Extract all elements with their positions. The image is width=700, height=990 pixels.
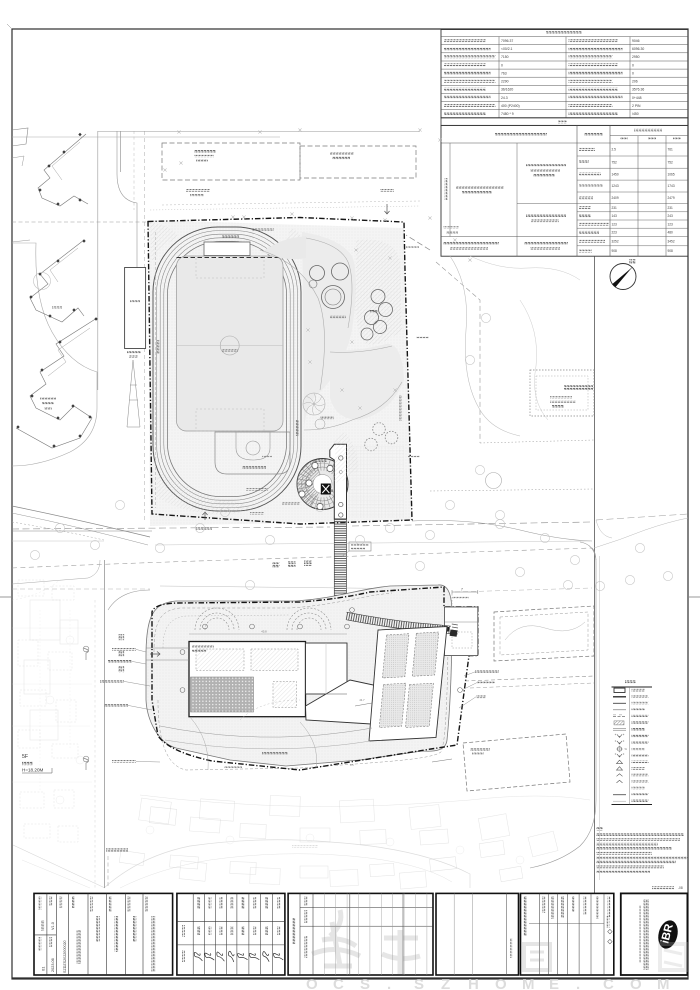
svg-text:908: 908 — [668, 249, 674, 253]
svg-text:3576.36: 3576.36 — [632, 88, 644, 92]
svg-text:9046: 9046 — [632, 39, 640, 43]
svg-text:2 PIN: 2 PIN — [632, 104, 641, 108]
svg-text:752: 752 — [612, 160, 618, 164]
svg-text:231: 231 — [612, 206, 618, 210]
svg-text:0: 0 — [501, 63, 503, 67]
svg-text:231: 231 — [668, 206, 674, 210]
svg-text:C: C — [603, 976, 614, 990]
svg-text:7: 7 — [461, 588, 463, 592]
svg-text:6096.30: 6096.30 — [632, 47, 644, 51]
svg-text:3452: 3452 — [668, 239, 675, 243]
svg-text:<00/2.1: <00/2.1 — [501, 47, 513, 51]
svg-text:7096.37: 7096.37 — [501, 39, 513, 43]
svg-text:O: O — [306, 976, 318, 990]
svg-text:2479: 2479 — [668, 196, 675, 200]
svg-text:143: 143 — [612, 214, 618, 218]
svg-text:1450: 1450 — [612, 172, 619, 176]
svg-text:908: 908 — [612, 249, 618, 253]
svg-text:24.3: 24.3 — [501, 96, 508, 100]
svg-text:223: 223 — [612, 231, 618, 235]
svg-text:SZDZS2022000020: SZDZS2022000020 — [63, 940, 67, 973]
svg-text:761: 761 — [668, 148, 674, 152]
svg-text:2.5: 2.5 — [612, 148, 617, 152]
svg-text:0: 0 — [632, 71, 634, 75]
svg-text:1743: 1743 — [668, 184, 675, 188]
svg-text:243: 243 — [668, 214, 674, 218]
svg-text:36/1620: 36/1620 — [501, 88, 513, 92]
svg-text:S: S — [414, 976, 424, 990]
svg-text:1065: 1065 — [668, 172, 675, 176]
svg-text:S: S — [360, 976, 370, 990]
svg-text:4.5: 4.5 — [350, 763, 354, 767]
svg-text:123: 123 — [668, 222, 674, 226]
svg-text:2409: 2409 — [612, 196, 619, 200]
svg-text:O: O — [495, 976, 507, 990]
svg-text:7480 * 9: 7480 * 9 — [501, 112, 514, 116]
svg-text:2023.06: 2023.06 — [51, 958, 55, 972]
svg-text:V1.0: V1.0 — [51, 922, 55, 930]
svg-text:O: O — [630, 976, 642, 990]
svg-text:2290: 2290 — [501, 80, 509, 84]
svg-text:45.8: 45.8 — [261, 630, 267, 634]
svg-text:01: 01 — [41, 966, 46, 971]
svg-text:H=18.20M: H=18.20M — [22, 768, 43, 773]
svg-text:1243: 1243 — [612, 184, 619, 188]
svg-text:752: 752 — [668, 160, 674, 164]
svg-text:480: 480 — [668, 231, 674, 235]
svg-text:206: 206 — [632, 80, 638, 84]
svg-text:.: . — [387, 976, 391, 990]
svg-text:123: 123 — [612, 222, 618, 226]
svg-text:M: M — [522, 976, 535, 990]
svg-text:0+448: 0+448 — [632, 96, 642, 100]
svg-text:24.7: 24.7 — [359, 698, 365, 702]
svg-text:400 (P2400): 400 (P2400) — [501, 104, 520, 108]
svg-text:Z: Z — [441, 976, 450, 990]
svg-text:H: H — [468, 976, 479, 990]
svg-text:7150: 7150 — [501, 55, 509, 59]
svg-text:763: 763 — [501, 71, 507, 75]
svg-text:.: . — [576, 976, 580, 990]
svg-text:M: M — [657, 976, 670, 990]
svg-text:2950: 2950 — [632, 55, 640, 59]
svg-text:E: E — [549, 976, 559, 990]
svg-text:C: C — [333, 976, 344, 990]
svg-text:/450: /450 — [632, 112, 639, 116]
svg-text:5F: 5F — [22, 754, 28, 760]
svg-text:0: 0 — [632, 63, 634, 67]
svg-text:-08: -08 — [678, 886, 683, 890]
svg-text:3252: 3252 — [612, 239, 619, 243]
